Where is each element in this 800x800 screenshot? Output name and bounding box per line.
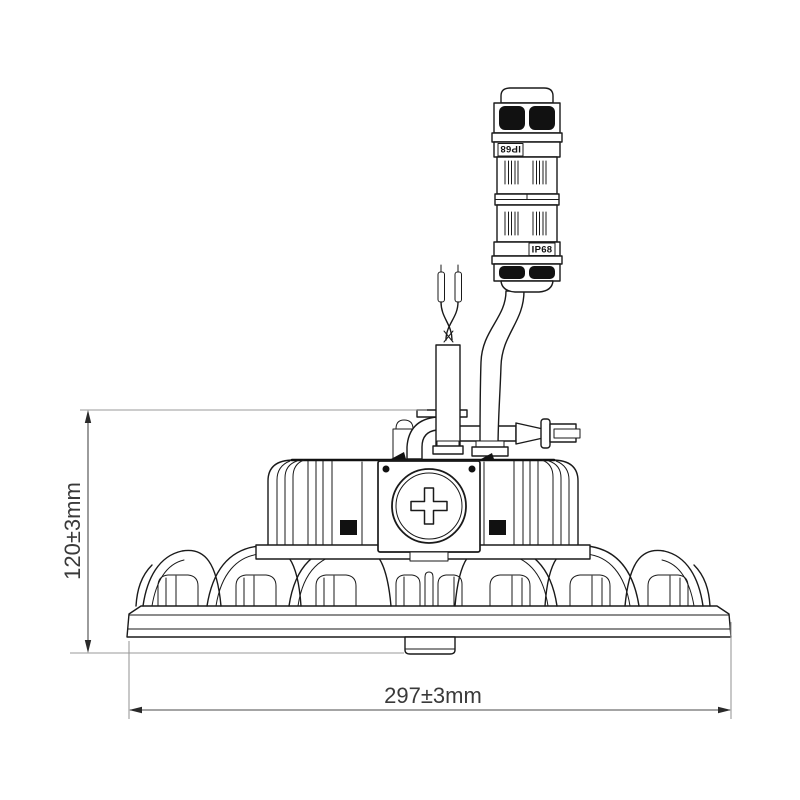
ip68-connector: IP68 IP68 bbox=[492, 88, 562, 292]
conduit-ring bbox=[541, 419, 550, 448]
cable-collar bbox=[476, 441, 504, 447]
flat-cable-collar bbox=[437, 441, 459, 446]
width-dimension-label: 297±3mm bbox=[384, 683, 482, 708]
connector-upper-body bbox=[497, 157, 557, 194]
side-conduit bbox=[455, 419, 580, 448]
flat-cable-flange bbox=[433, 446, 463, 454]
width-arrow-right bbox=[718, 707, 731, 713]
plate-screw-right bbox=[469, 466, 476, 473]
plate-tongue bbox=[410, 552, 448, 561]
technical-drawing: IP68 IP68 120±3mm 297±3mm bbox=[0, 0, 800, 800]
right-latch-detail bbox=[489, 520, 506, 535]
connector-top-cap bbox=[501, 88, 553, 103]
conduit-taper bbox=[516, 423, 543, 444]
height-dimension-label: 120±3mm bbox=[60, 482, 85, 580]
connector-bottom-cap bbox=[501, 281, 553, 292]
plate-screw-left bbox=[383, 466, 390, 473]
connector-label-bottom: IP68 bbox=[532, 245, 553, 256]
bare-wires bbox=[438, 265, 462, 342]
mounting-plate bbox=[378, 461, 480, 561]
connector-label-top: IP68 bbox=[500, 143, 521, 154]
left-latch-detail bbox=[340, 520, 357, 535]
connector-lower-body bbox=[497, 205, 557, 242]
bracket-arch bbox=[396, 420, 413, 429]
diagram-canvas: IP68 IP68 120±3mm 297±3mm bbox=[0, 0, 800, 800]
flat-cable bbox=[433, 345, 463, 454]
lamp-base-rim bbox=[127, 606, 731, 637]
width-arrow-left bbox=[129, 707, 142, 713]
conduit-inner-tube bbox=[554, 429, 580, 438]
bottom-protrusion bbox=[405, 637, 455, 654]
height-arrow-up bbox=[85, 410, 91, 423]
height-arrow-down bbox=[85, 640, 91, 653]
